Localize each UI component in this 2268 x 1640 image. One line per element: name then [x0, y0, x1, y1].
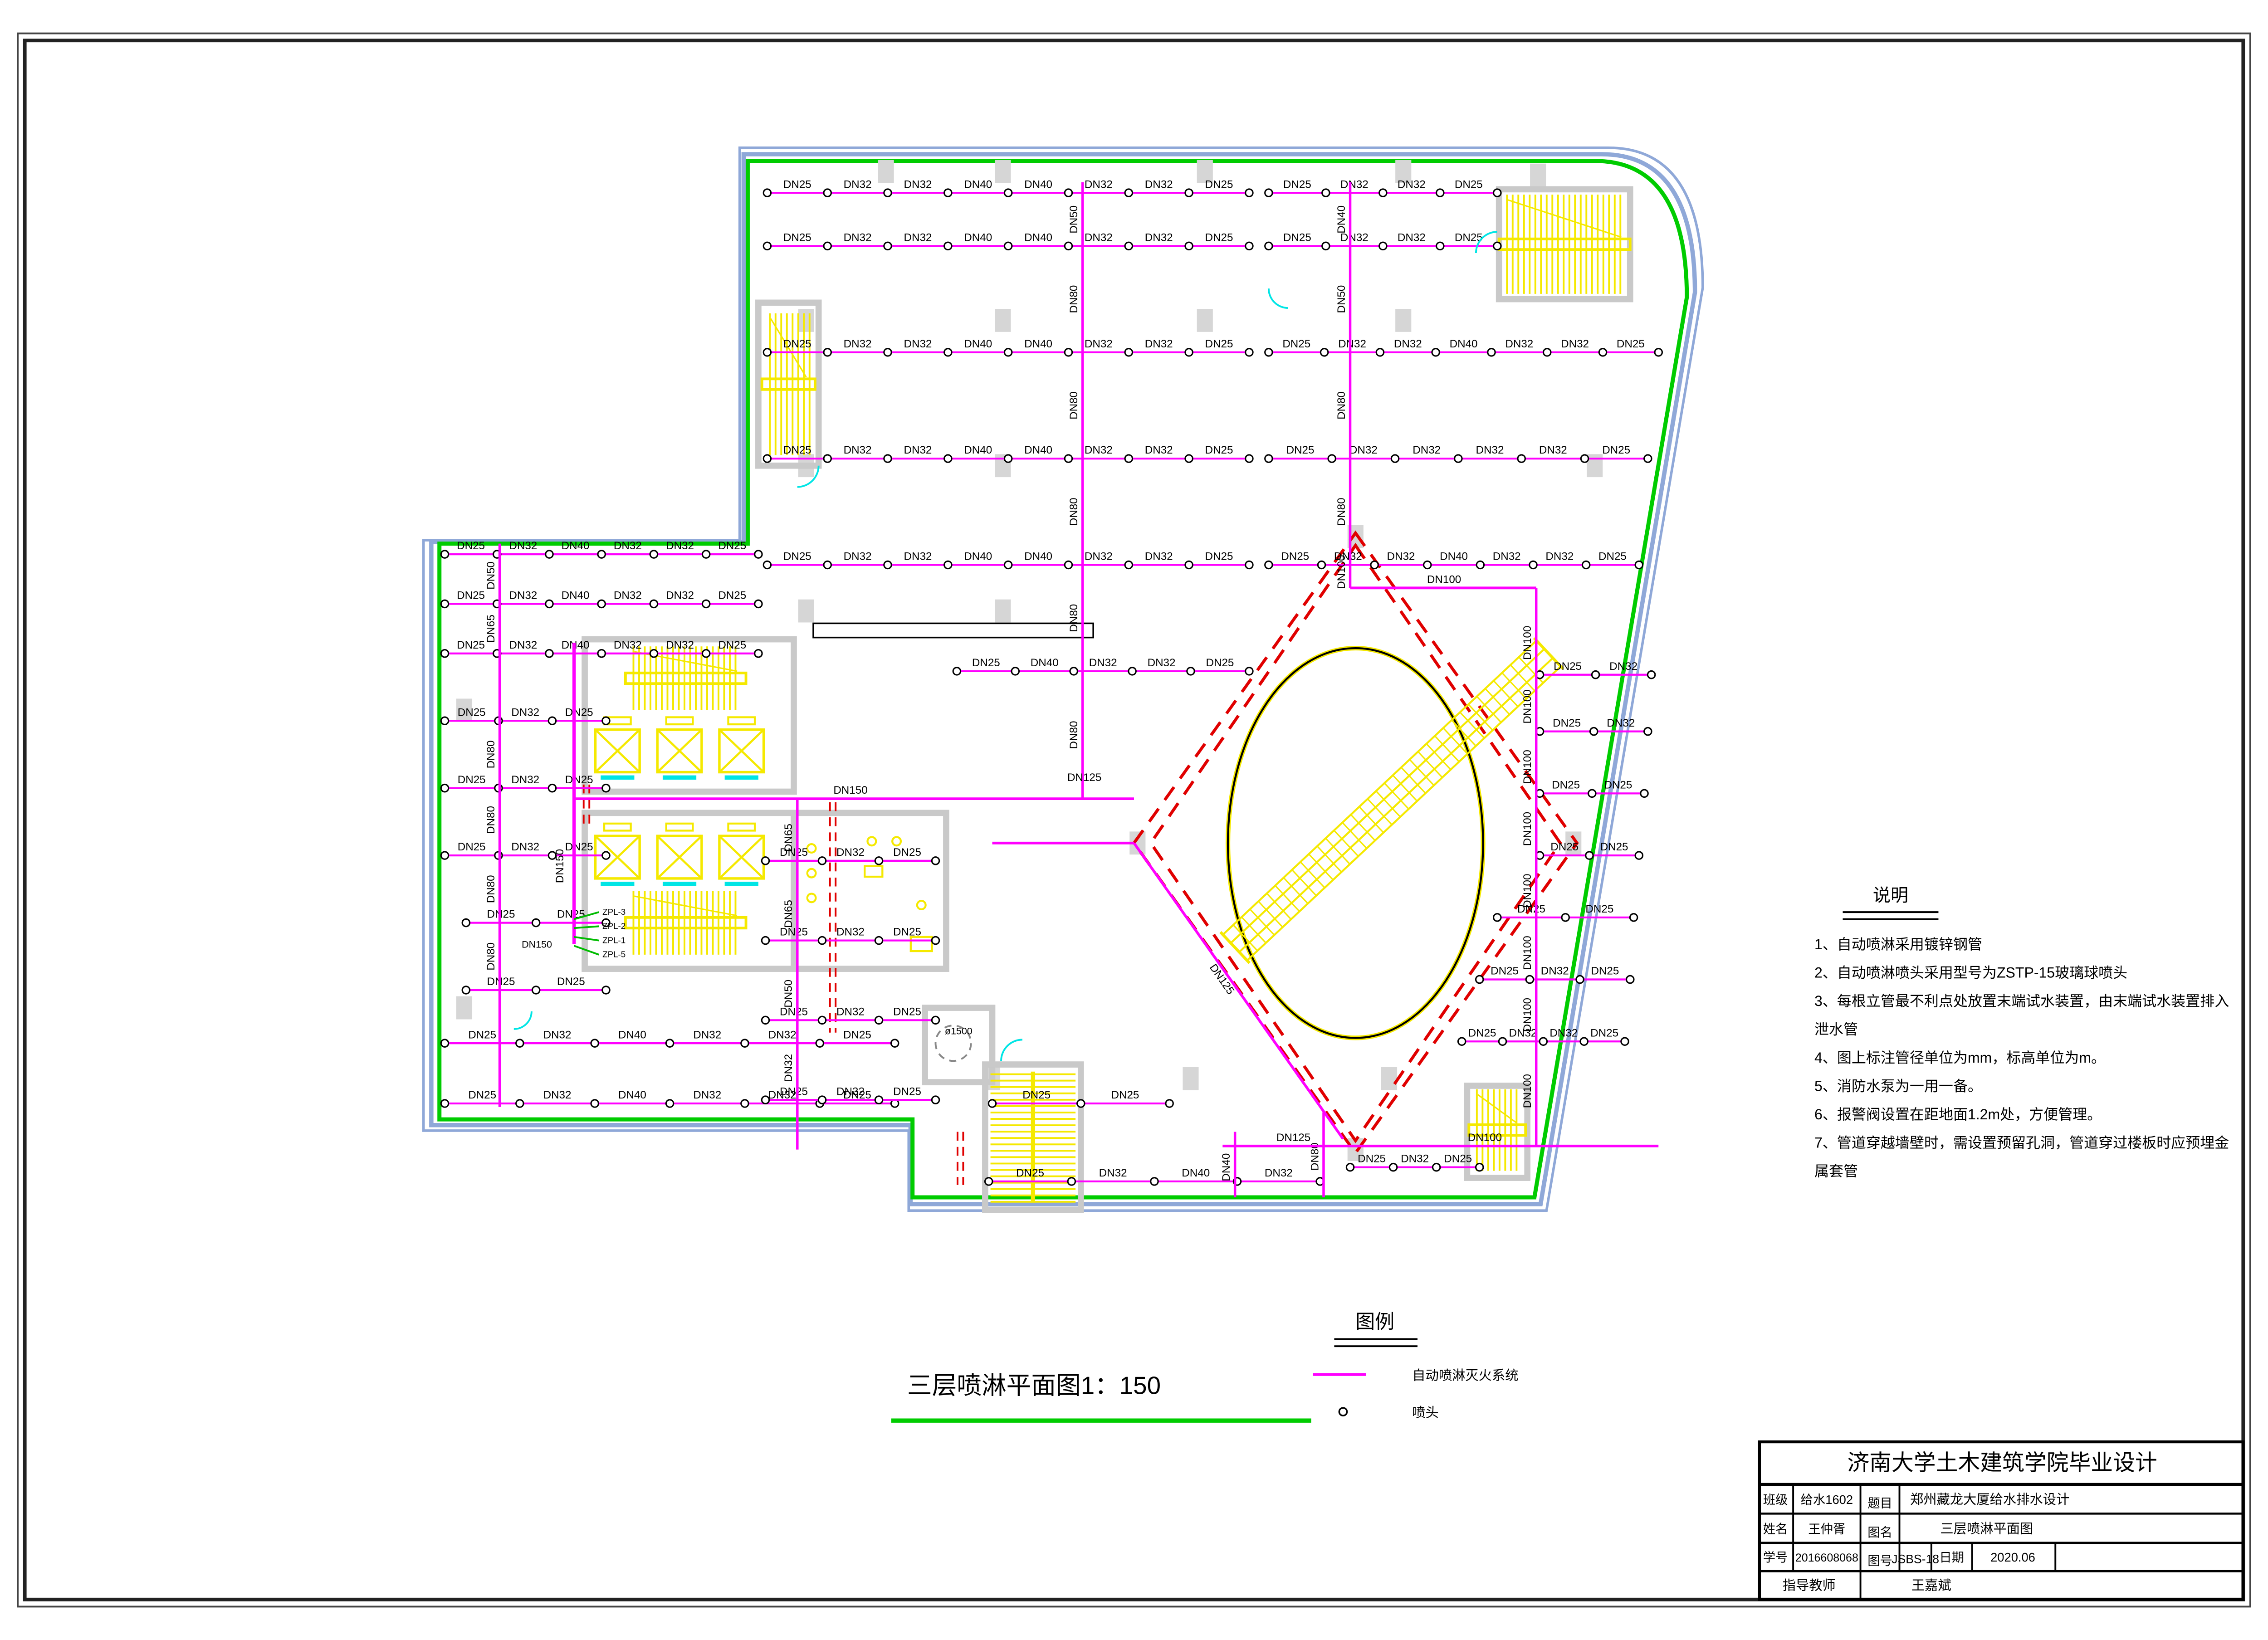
- pipe-size-label: DN32: [904, 338, 932, 350]
- sprinkler-head: [824, 349, 831, 356]
- sprinkler-head: [1125, 455, 1132, 462]
- door-arc-icon: [1001, 1040, 1022, 1061]
- pipe-size-label: DN25: [457, 540, 485, 552]
- pipe-size-label: DN25: [468, 1029, 496, 1041]
- pipe-size-label: DN25: [1286, 444, 1315, 456]
- sprinkler-head: [1246, 668, 1253, 675]
- pipe-size-label: DN25: [557, 908, 585, 921]
- pipe-size-label: DN40: [618, 1089, 646, 1101]
- branch-row: DN25DN25: [1536, 779, 1648, 797]
- pipe-size-label: DN40: [964, 178, 992, 190]
- sprinkler-head: [1582, 561, 1589, 568]
- pipe-size-label: DN32: [1085, 178, 1113, 190]
- branch-row: DN25DN32DN25: [762, 926, 939, 944]
- sprinkler-head: [763, 242, 771, 249]
- sprinkler-head: [1151, 1178, 1158, 1185]
- pipe-size-label: DN25: [458, 841, 486, 853]
- sprinkler-head: [1004, 455, 1012, 462]
- sprinkler-head: [1494, 914, 1501, 921]
- pipe-size-label: DN100: [1521, 689, 1534, 723]
- stair-icon: [762, 313, 815, 455]
- sprinkler-head: [598, 551, 605, 558]
- pipe-size-label: DN32: [1607, 717, 1635, 729]
- pipe-size-label: DN25: [1591, 965, 1619, 977]
- sprinkler-head: [944, 561, 952, 568]
- pipe-size-label: DN32: [1398, 231, 1426, 244]
- pipe-size-label: DN32: [1387, 551, 1415, 563]
- pipe-size-label: DN25: [1205, 178, 1233, 190]
- riser-tag-label: ZPL-5: [602, 950, 626, 959]
- pipe-size-label: DN50: [485, 561, 497, 590]
- sprinkler-head: [953, 668, 960, 675]
- sprinkler-head: [755, 650, 762, 657]
- door-arc-icon: [1269, 288, 1288, 308]
- sprinkler-head: [1494, 189, 1501, 196]
- annotation-label: DN150: [522, 939, 552, 950]
- pipe-size-label: DN80: [485, 806, 497, 834]
- pipe-size-label: DN40: [1031, 657, 1059, 669]
- pipe-size-label: DN32: [1545, 551, 1574, 563]
- elevator-icon: [719, 824, 764, 884]
- floor-plan: DN25DN32DN32DN40DN40DN32DN32DN25DN25DN32…: [424, 148, 1703, 1210]
- pipe-size-label: DN25: [1281, 551, 1309, 563]
- sprinkler-head: [1544, 349, 1551, 356]
- branch-row: DN25DN32DN25: [762, 1005, 939, 1024]
- branch-row: DN25DN32DN32DN25: [1265, 231, 1501, 249]
- sprinkler-head: [1379, 189, 1387, 196]
- pipe-size-label: DN32: [844, 551, 872, 563]
- toilet-icon: [807, 869, 816, 878]
- sprinkler-head: [944, 455, 952, 462]
- sprinkler-head: [650, 600, 657, 607]
- legend-pipe-label: 自动喷淋灭火系统: [1412, 1368, 1518, 1383]
- sprinkler-head: [1125, 349, 1132, 356]
- pipe-size-label: DN32: [1476, 444, 1504, 456]
- sprinkler-head: [598, 650, 605, 657]
- column: [798, 309, 814, 332]
- sprinkler-head: [1070, 668, 1077, 675]
- sprinkler-head: [1185, 349, 1193, 356]
- sprinkler-head: [1432, 349, 1439, 356]
- vertical-main: DN100DN100DN100DN100DN100DN100DN100DN100: [1521, 588, 1536, 1146]
- sprinkler-head: [818, 1016, 826, 1024]
- sprinkler-head: [1187, 668, 1194, 675]
- sprinkler-head: [441, 1100, 448, 1107]
- sprinkler-head: [602, 852, 610, 859]
- pipe-size-label: DN25: [893, 926, 921, 938]
- pipe-size-label: DN32: [509, 540, 537, 552]
- toilet-icon: [807, 844, 816, 853]
- sprinkler-head: [1655, 349, 1662, 356]
- pipe-size-label: DN25: [1444, 1153, 1472, 1165]
- pipe-size-label: DN32: [509, 639, 537, 651]
- pipe-size-label: DN25: [557, 976, 585, 988]
- pipe-size-label: DN40: [1024, 444, 1052, 456]
- branch-row: DN25DN32DN32DN40DN40DN32DN32DN25: [763, 444, 1253, 462]
- branch-row: DN25DN32DN32DN25: [1458, 1027, 1628, 1045]
- pipe-size-label: DN50: [1068, 205, 1080, 234]
- sprinkler-head: [1068, 1178, 1075, 1185]
- pipe-size-label: DN80: [1335, 498, 1348, 526]
- pipe-size-label: DN150: [833, 784, 867, 796]
- sprinkler-head: [762, 937, 769, 944]
- sprinkler-head: [1391, 455, 1398, 462]
- branch-row: DN25DN32DN32DN40DN40DN32DN32DN25: [763, 231, 1253, 249]
- pipe-size-label: DN65: [485, 615, 497, 643]
- sprinkler-head: [1246, 349, 1253, 356]
- sprinkler-head: [1437, 242, 1444, 249]
- legend-sprinkler-label: 喷头: [1412, 1405, 1439, 1420]
- elevator-icon: [596, 717, 640, 777]
- branch-row: DN25DN32DN40DN32DN32DN25: [441, 1089, 899, 1107]
- pipe-size-label: DN25: [718, 590, 746, 602]
- pipe-size-label: DN32: [666, 639, 694, 651]
- pipe-size-label: DN25: [1205, 231, 1233, 244]
- sprinkler-head: [1424, 561, 1431, 568]
- pipe-size-label: DN25: [1205, 551, 1233, 563]
- notes-block: 说明 1、自动喷淋采用镀锌钢管 2、自动喷淋喷头采用型号为ZSTP-15玻璃球喷…: [1814, 886, 2229, 1179]
- pipe-size-label: DN25: [1604, 779, 1632, 791]
- atrium: [1134, 533, 1577, 1153]
- wall: [794, 813, 946, 969]
- sprinkler-head: [441, 717, 448, 724]
- sprinkler-head: [944, 189, 952, 196]
- sprinkler-head: [1265, 189, 1272, 196]
- sprinkler-head: [875, 937, 882, 944]
- pipe-size-label: DN32: [1145, 178, 1173, 190]
- pipe-size-label: DN32: [1549, 1027, 1578, 1039]
- sprinkler-head: [818, 857, 826, 864]
- pipe-size-label: DN40: [964, 551, 992, 563]
- branch-row: DN25DN32: [1536, 717, 1652, 735]
- pipe-size-label: DN32: [1539, 444, 1567, 456]
- sprinkler-head: [944, 349, 952, 356]
- branch-row: DN25DN25: [1494, 903, 1637, 921]
- date-value: 2020.06: [1990, 1550, 2035, 1564]
- sprinkler-head: [1371, 561, 1378, 568]
- vertical-main: DN40: [1220, 1132, 1235, 1198]
- pipe-size-label: DN32: [1145, 551, 1173, 563]
- pipe-size-label: DN25: [487, 976, 515, 988]
- sheet-border-frame: [18, 34, 2250, 1607]
- student-id-label: 学号: [1763, 1550, 1788, 1564]
- advisor-label: 指导教师: [1783, 1578, 1836, 1593]
- note-line: 1、自动喷淋采用镀锌钢管: [1814, 936, 1982, 952]
- sprinkler-head: [1320, 349, 1328, 356]
- pipe-size-label: DN25: [718, 540, 746, 552]
- pipe-size-label: DN25: [1585, 903, 1613, 915]
- pipe-size-label: DN125: [1276, 1132, 1310, 1144]
- sprinkler-head: [516, 1100, 523, 1107]
- branch-row: DN25DN32DN32DN40DN32DN32DN25: [1265, 338, 1662, 356]
- sprinkler-head: [1635, 852, 1642, 859]
- student-id-value: 2016608068: [1795, 1552, 1858, 1564]
- pipe-size-label: DN80: [1068, 285, 1080, 313]
- pipe-size-label: DN40: [1182, 1167, 1210, 1179]
- pipe-size-label: DN25: [1016, 1167, 1044, 1179]
- pipe-size-label: DN25: [1022, 1089, 1051, 1101]
- sprinkler-head: [1592, 671, 1599, 678]
- pipe-size-label: DN32: [836, 1005, 865, 1018]
- sprinkler-head: [818, 1096, 826, 1103]
- pipe-size-label: DN100: [1521, 1074, 1534, 1108]
- riser-tag-label: ZPL-1: [602, 935, 626, 945]
- pipe-size-label: DN32: [1099, 1167, 1127, 1179]
- sprinkler-head: [932, 857, 939, 864]
- sprinkler-head: [1526, 976, 1533, 983]
- pipe-size-label: DN25: [1552, 779, 1580, 791]
- pipe-size-label: DN40: [562, 590, 590, 602]
- sprinkler-head: [441, 1040, 448, 1047]
- stair-icon: [626, 646, 746, 710]
- pipe-size-label: DN32: [904, 551, 932, 563]
- pipe-size-label: DN32: [1561, 338, 1589, 350]
- pipe-size-label: DN32: [768, 1029, 797, 1041]
- pipe-size-label: DN25: [1598, 551, 1627, 563]
- stair-icon: [626, 891, 746, 955]
- pipe-size-label: DN32: [666, 590, 694, 602]
- sprinkler-head: [1627, 976, 1634, 983]
- sprinkler-head: [1065, 242, 1072, 249]
- sprinkler-head: [1647, 671, 1655, 678]
- pipe-size-label: DN25: [1205, 444, 1233, 456]
- branch-row: DN25DN32DN40DN32DN32DN25: [441, 590, 762, 608]
- sprinkler-head: [1476, 1163, 1483, 1171]
- pipe-size-label: DN25: [1282, 338, 1310, 350]
- sprinkler-head: [1065, 561, 1072, 568]
- sprinkler-head: [884, 242, 891, 249]
- sprinkler-head: [1589, 790, 1596, 797]
- sprinkler-head: [824, 189, 831, 196]
- pipe-size-label: DN25: [1283, 231, 1311, 244]
- pipe-size-label: DN32: [1401, 1153, 1429, 1165]
- pipe-size-label: DN40: [1335, 205, 1348, 234]
- pipe-size-label: DN32: [1145, 444, 1173, 456]
- sprinkler-head: [1185, 455, 1193, 462]
- drawing-no-label: 图号: [1867, 1554, 1892, 1568]
- sprinkler-head: [763, 455, 771, 462]
- pipe-size-label: DN100: [1521, 936, 1534, 970]
- sprinkler-head: [1641, 790, 1648, 797]
- branch-row: DN25DN32DN32DN40DN40DN32DN32DN25: [763, 551, 1253, 569]
- pipe-size-label: DN25: [458, 774, 486, 786]
- vertical-main: DN50DN65DN80DN80DN80DN80: [485, 544, 500, 1107]
- sprinkler-head: [702, 650, 709, 657]
- sprinkler-head: [762, 1096, 769, 1103]
- pipe-size-label: DN32: [782, 1054, 795, 1082]
- drawing-name-label: 图名: [1867, 1525, 1892, 1539]
- sprinkler-head: [602, 717, 610, 724]
- pipe-size-label: DN40: [964, 338, 992, 350]
- sprinkler-head: [1012, 668, 1019, 675]
- pipe-size-label: DN32: [904, 231, 932, 244]
- pipe-size-label: DN32: [543, 1089, 572, 1101]
- sprinkler-head: [1322, 189, 1330, 196]
- pipe-size-label: DN32: [1398, 178, 1426, 190]
- sprinkler-head: [441, 600, 448, 607]
- pipe-size-label: DN32: [1085, 551, 1113, 563]
- sprinkler-head: [546, 650, 553, 657]
- pipe-size-label: DN40: [1450, 338, 1478, 350]
- pipe-size-label: DN80: [1335, 391, 1348, 420]
- sprinkler-head: [441, 852, 448, 859]
- sprinkler-head: [516, 1040, 523, 1047]
- sprinkler-head: [532, 919, 539, 926]
- sprinkler-head: [650, 551, 657, 558]
- sprinkler-head: [1458, 1038, 1465, 1045]
- pipe-size-label: DN25: [1358, 1153, 1386, 1165]
- sprinkler-head: [762, 1016, 769, 1024]
- pipe-size-label: DN25: [487, 908, 515, 921]
- pipe-size-label: DN32: [543, 1029, 572, 1041]
- sprinkler-head: [884, 455, 891, 462]
- riser-tag-label: ZPL-2: [602, 921, 626, 931]
- sprinkler-head: [891, 1040, 898, 1047]
- boundary-blue-line: [431, 154, 1695, 1204]
- name-label: 姓名: [1763, 1522, 1788, 1536]
- sprinkler-head: [1125, 242, 1132, 249]
- sprinkler-head: [1499, 1038, 1506, 1045]
- pipe-size-label: DN25: [783, 551, 811, 563]
- legend-title: 图例: [1355, 1311, 1394, 1333]
- sprinkler-head: [1586, 852, 1593, 859]
- pipe-size-label: DN32: [1089, 657, 1117, 669]
- sprinkler-head: [1346, 1163, 1354, 1171]
- sprinkler-head: [1065, 455, 1072, 462]
- sprinkler-head: [1455, 455, 1462, 462]
- elevator-icon: [657, 824, 702, 884]
- sprinkler-head: [755, 551, 762, 558]
- sprinkler-head: [1246, 455, 1253, 462]
- pipe-size-label: DN25: [458, 706, 486, 718]
- class-label: 班级: [1763, 1493, 1788, 1507]
- sprinkler-head: [1476, 976, 1483, 983]
- sprinkler-head: [884, 349, 891, 356]
- sprinkler-head: [932, 937, 939, 944]
- sprinkler-head: [1518, 455, 1525, 462]
- pipe-size-label: DN40: [1024, 338, 1052, 350]
- sprinkler-head: [591, 1100, 598, 1107]
- sprinkler-head: [1644, 727, 1652, 735]
- sprinkler-head: [1635, 561, 1642, 568]
- date-label: 日期: [1939, 1550, 1964, 1564]
- pipe-size-label: DN32: [1145, 231, 1173, 244]
- pipe-size-label: DN100: [1521, 874, 1534, 908]
- pipe-size-label: DN32: [511, 774, 539, 786]
- sprinkler-head: [1246, 189, 1253, 196]
- sprinkler-head: [1581, 455, 1588, 462]
- sprinkler-head: [1644, 455, 1652, 462]
- drawing-name-value: 三层喷淋平面图: [1940, 1521, 2033, 1536]
- pipe-size-label: DN25: [972, 657, 1000, 669]
- pipe-size-label: DN32: [844, 178, 872, 190]
- pipe-size-label: DN25: [457, 590, 485, 602]
- pipe-size-label: DN32: [1145, 338, 1173, 350]
- sprinkler-head: [1432, 1163, 1440, 1171]
- pipe-size-label: DN100: [1521, 812, 1534, 846]
- sprinkler-head: [1389, 1163, 1397, 1171]
- branch-row: DN25DN32DN25: [1346, 1153, 1483, 1171]
- column: [878, 160, 894, 183]
- pipe-size-label: DN25: [1617, 338, 1645, 350]
- pipe-size-label: DN32: [836, 1085, 865, 1098]
- pipe-size-label: DN25: [718, 639, 746, 651]
- pipe-size-label: DN32: [1085, 444, 1113, 456]
- beam-outline: [813, 623, 1093, 637]
- annotation-label: ø1500: [945, 1026, 973, 1037]
- topic-value: 郑州藏龙大厦给水排水设计: [1910, 1492, 2069, 1507]
- elevator-icon: [719, 717, 764, 777]
- pipe-size-label: DN32: [1413, 444, 1441, 456]
- pipe-size-label: DN32: [1338, 338, 1366, 350]
- pipe-size-label: DN32: [844, 444, 872, 456]
- branch-row: DN25DN32DN32DN25: [1265, 178, 1501, 196]
- elevator-bank: [596, 717, 764, 883]
- sprinkler-head: [1590, 727, 1597, 735]
- sprinkler-head: [741, 1100, 748, 1107]
- note-line: 7、管道穿越墙壁时，需设置预留孔洞，管道穿过楼板时应预埋金: [1814, 1135, 2229, 1151]
- pipe-size-label: DN32: [666, 540, 694, 552]
- pipe-size-label: DN32: [1493, 551, 1521, 563]
- branch-row: DN25DN32DN32DN40DN32DN32DN25: [1265, 551, 1643, 569]
- sprinkler-head: [824, 455, 831, 462]
- pipe-size-label: DN32: [1085, 338, 1113, 350]
- sprinkler-head: [666, 1040, 673, 1047]
- sprinkler-head: [1322, 242, 1330, 249]
- pipe-size-label: DN32: [1148, 657, 1176, 669]
- pipe-size-label: DN40: [1440, 551, 1468, 563]
- pipe-size-label: DN32: [836, 846, 865, 859]
- toilet-icon: [807, 894, 816, 903]
- branch-row: DN25DN32DN32DN40DN40DN32DN32DN25: [763, 338, 1253, 356]
- pipe-size-label: DN32: [693, 1089, 721, 1101]
- pipe-size-label: DN25: [457, 639, 485, 651]
- elevator-icon: [657, 717, 702, 777]
- pipe-size-label: DN25: [893, 1005, 921, 1018]
- pipe-size-label: DN32: [511, 706, 539, 718]
- pipe-size-label: DN32: [614, 639, 642, 651]
- legend-sprinkler-symbol: [1339, 1408, 1347, 1415]
- pipe-size-label: DN25: [1600, 841, 1628, 853]
- pipe-size-label: DN25: [783, 231, 811, 244]
- pipe-size-label: DN40: [1024, 178, 1052, 190]
- sprinkler-head: [1540, 1038, 1547, 1045]
- stair-icon: [1499, 195, 1630, 294]
- sprinkler-head: [763, 189, 771, 196]
- pipe-size-label: DN25: [1205, 338, 1233, 350]
- pipe-size-label: DN80: [1068, 498, 1080, 526]
- drawing-no-value: JSBS-18: [1892, 1552, 1939, 1566]
- pipe-size-label: DN80: [485, 942, 497, 971]
- pipe-size-label: DN25: [1111, 1089, 1139, 1101]
- column: [995, 600, 1011, 623]
- sheet-title: 济南大学土木建筑学院毕业设计: [1847, 1451, 2157, 1475]
- sprinkler-head: [1246, 561, 1253, 568]
- pipe-size-label: DN100: [1335, 555, 1348, 589]
- note-line: 泄水管: [1814, 1021, 1858, 1038]
- pipe-size-label: DN25: [1283, 178, 1311, 190]
- sprinkler-head: [1488, 349, 1495, 356]
- sprinkler-head: [1437, 189, 1444, 196]
- plan-title-text: 三层喷淋平面图1：150: [907, 1372, 1161, 1400]
- toilet-icon: [917, 901, 926, 909]
- column: [1197, 309, 1213, 332]
- pipe-size-label: DN40: [1024, 231, 1052, 244]
- pipe-size-label: DN25: [893, 1085, 921, 1098]
- note-line: 2、自动喷淋喷头采用型号为ZSTP-15玻璃球喷头: [1814, 965, 2127, 981]
- sprinkler-head: [441, 650, 448, 657]
- sprinkler-head: [1125, 561, 1132, 568]
